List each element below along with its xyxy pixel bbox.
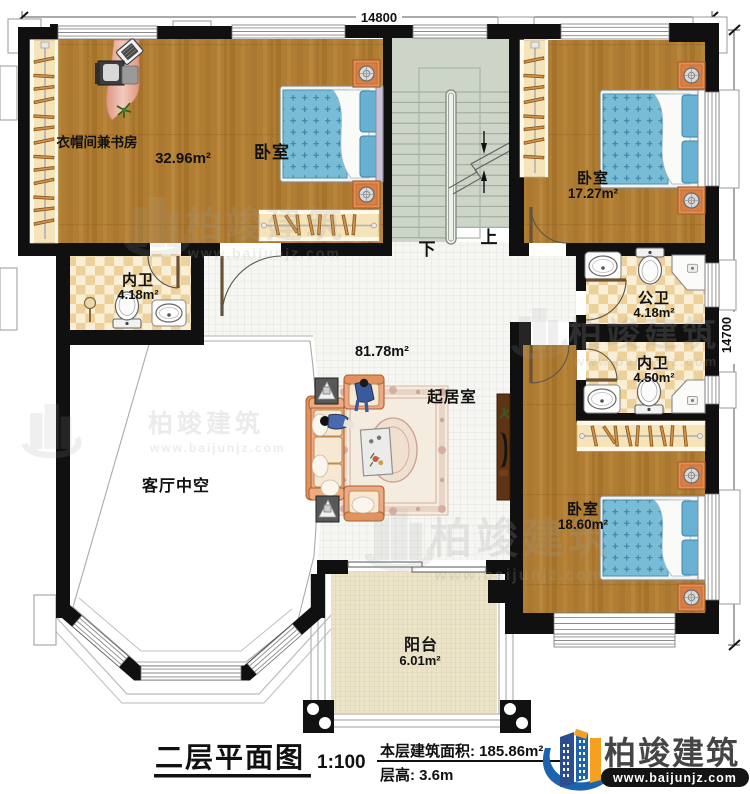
svg-text:14700: 14700 <box>719 317 734 353</box>
svg-text:4.50m²: 4.50m² <box>633 370 675 385</box>
svg-text:二层平面图: 二层平面图 <box>155 742 305 773</box>
svg-text:柏竣建筑: 柏竣建筑 <box>568 315 720 354</box>
svg-text:4.18m²: 4.18m² <box>117 287 159 302</box>
svg-text:柏竣建筑: 柏竣建筑 <box>148 409 264 438</box>
svg-text:www.baijunjz.com: www.baijunjz.com <box>612 771 737 785</box>
svg-text:起居室: 起居室 <box>426 387 477 406</box>
svg-text:6.01m²: 6.01m² <box>399 653 441 668</box>
svg-text:www.baijunjz.com: www.baijunjz.com <box>187 245 341 261</box>
svg-text:卧室: 卧室 <box>577 169 609 187</box>
svg-text:18.60m²: 18.60m² <box>558 517 609 532</box>
svg-text:卧室: 卧室 <box>567 500 599 518</box>
svg-text:14800: 14800 <box>361 10 397 25</box>
svg-text:本层建筑面积: 185.86m²: 本层建筑面积: 185.86m² <box>380 742 543 760</box>
svg-text:www.baijunjz.com: www.baijunjz.com <box>149 441 286 455</box>
svg-text:下: 下 <box>419 240 436 259</box>
svg-text:1:100: 1:100 <box>317 752 366 773</box>
svg-text:17.27m²: 17.27m² <box>568 186 619 201</box>
svg-text:4.18m²: 4.18m² <box>633 305 675 320</box>
svg-text:卧室: 卧室 <box>254 142 290 162</box>
svg-text:32.96m²: 32.96m² <box>155 150 211 167</box>
svg-text:www.baijunjz.com: www.baijunjz.com <box>433 567 604 584</box>
svg-text:阳台: 阳台 <box>404 635 438 654</box>
svg-text:客厅中空: 客厅中空 <box>142 476 210 495</box>
svg-text:上: 上 <box>481 228 498 247</box>
svg-text:层高: 3.6m: 层高: 3.6m <box>380 766 453 784</box>
svg-text:81.78m²: 81.78m² <box>355 344 409 360</box>
svg-text:衣帽间兼书房: 衣帽间兼书房 <box>57 134 138 150</box>
svg-text:柏竣建筑: 柏竣建筑 <box>604 735 740 771</box>
svg-text:柏竣建筑: 柏竣建筑 <box>186 204 346 245</box>
